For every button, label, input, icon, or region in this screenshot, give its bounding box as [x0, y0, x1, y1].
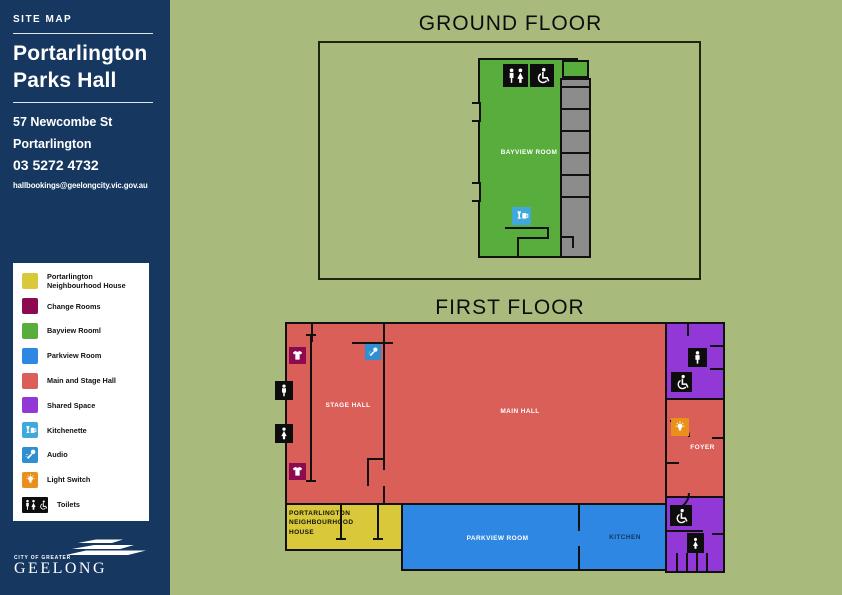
wall — [505, 227, 549, 229]
wall — [712, 437, 725, 439]
site-map-eyebrow: SITE MAP — [13, 14, 72, 25]
wall — [562, 108, 589, 110]
accessible-toilet-icon — [671, 372, 692, 392]
first-floor-title: FIRST FLOOR — [320, 296, 700, 320]
accessible-toilet-icon — [530, 64, 554, 87]
legend-row: Parkview Room — [22, 343, 149, 368]
neighbourhood-house-swatch — [22, 273, 38, 289]
female-toilet-icon — [687, 533, 704, 553]
stair-line — [686, 553, 688, 571]
toilets-icon — [503, 64, 528, 87]
wall — [377, 503, 379, 540]
bayview-room-annex — [562, 60, 589, 78]
legend-row: Main and Stage Hall — [22, 368, 149, 393]
stair-line — [696, 553, 698, 571]
legend-label: Kitchenette — [47, 426, 143, 435]
wall — [306, 480, 316, 482]
wall — [667, 530, 703, 532]
door-notch — [472, 182, 481, 202]
main-stage-hall-swatch — [22, 373, 38, 389]
door-notch — [472, 102, 481, 122]
female-toilet-icon — [275, 424, 293, 443]
legend-label: Parkview Room — [47, 351, 143, 360]
bayview-room-swatch — [22, 323, 38, 339]
legend-label: Audio — [47, 450, 143, 459]
audio-icon — [22, 447, 38, 463]
wall — [710, 345, 725, 347]
light-switch-icon — [671, 418, 689, 436]
change-rooms-swatch — [22, 298, 38, 314]
legend-label: Change Rooms — [47, 302, 143, 311]
wall — [562, 174, 589, 176]
wall — [517, 237, 549, 239]
legend-label: Portarlington Neighbourhood House — [47, 272, 143, 290]
wall — [712, 533, 725, 535]
wall — [383, 324, 385, 470]
address-line2: Portarlington — [13, 137, 91, 151]
stage-hall-label: STAGE HALL — [310, 402, 386, 409]
wall — [578, 546, 580, 571]
parkview-room-label: PARKVIEW ROOM — [440, 535, 555, 542]
legend-row: Toilets — [22, 492, 149, 517]
wall — [311, 324, 313, 342]
audio-icon — [365, 344, 381, 360]
wall — [687, 324, 689, 336]
wall — [517, 237, 519, 257]
phone-number: 03 5272 4732 — [13, 157, 99, 173]
legend: Portarlington Neighbourhood House Change… — [13, 263, 149, 521]
parkview-room-swatch — [22, 348, 38, 364]
legend-label: Bayview Rooml — [47, 326, 143, 335]
male-toilet-icon — [688, 348, 707, 367]
ground-floor-title: GROUND FLOOR — [318, 12, 703, 36]
email-address: hallbookings@geelongcity.vic.gov.au — [13, 181, 148, 190]
change-room-icon — [289, 347, 306, 364]
wall — [710, 368, 725, 370]
legend-row: Shared Space — [22, 393, 149, 418]
accessible-toilet-icon — [670, 505, 692, 526]
stair-line — [706, 553, 708, 571]
divider — [13, 102, 153, 103]
legend-label: Main and Stage Hall — [47, 376, 143, 385]
logo-large-text: GEELONG — [14, 560, 107, 578]
legend-row: Audio — [22, 443, 149, 468]
divider — [13, 33, 153, 34]
legend-label: Shared Space — [47, 401, 143, 410]
site-map-page: SITE MAP Portarlington Parks Hall 57 New… — [0, 0, 842, 595]
bayview-room-label: BAYVIEW ROOM — [484, 149, 574, 156]
legend-row: Light Switch — [22, 467, 149, 492]
kitchen-label: KITCHEN — [595, 534, 655, 541]
corridor-region — [560, 78, 591, 258]
light-switch-icon — [22, 472, 38, 488]
foyer-label: FOYER — [680, 444, 725, 451]
shared-space-swatch — [22, 397, 38, 413]
legend-label: Light Switch — [47, 475, 143, 484]
legend-label: Toilets — [57, 500, 149, 509]
wall — [336, 538, 346, 540]
toilets-icon — [22, 497, 48, 513]
legend-row: Bayview Rooml — [22, 319, 149, 344]
wall — [367, 458, 384, 460]
wall — [562, 130, 589, 132]
wall — [383, 486, 385, 505]
legend-row: Portarlington Neighbourhood House — [22, 269, 149, 294]
hall-title-line1: Portarlington — [13, 42, 147, 66]
main-hall-label: MAIN HALL — [470, 408, 570, 415]
wall — [667, 462, 679, 464]
change-room-icon — [289, 463, 306, 480]
kitchenette-icon — [22, 422, 38, 438]
legend-row: Change Rooms — [22, 294, 149, 319]
male-toilet-icon — [275, 381, 293, 400]
wall — [562, 196, 589, 198]
kitchenette-icon — [512, 207, 531, 225]
address-line1: 57 Newcombe St — [13, 115, 112, 129]
wall — [572, 236, 574, 248]
legend-row: Kitchenette — [22, 418, 149, 443]
hall-title-line2: Parks Hall — [13, 69, 117, 93]
sidebar: SITE MAP Portarlington Parks Hall 57 New… — [0, 0, 170, 595]
wall — [367, 458, 369, 486]
wall — [578, 503, 580, 531]
neighbourhood-house-label: PORTARLINGTON NEIGHBOURHOOD HOUSE — [289, 509, 371, 537]
stair-line — [676, 553, 678, 571]
geelong-logo: CITY OF GREATER GEELONG — [12, 538, 152, 580]
wall — [562, 86, 589, 88]
wall — [373, 538, 383, 540]
